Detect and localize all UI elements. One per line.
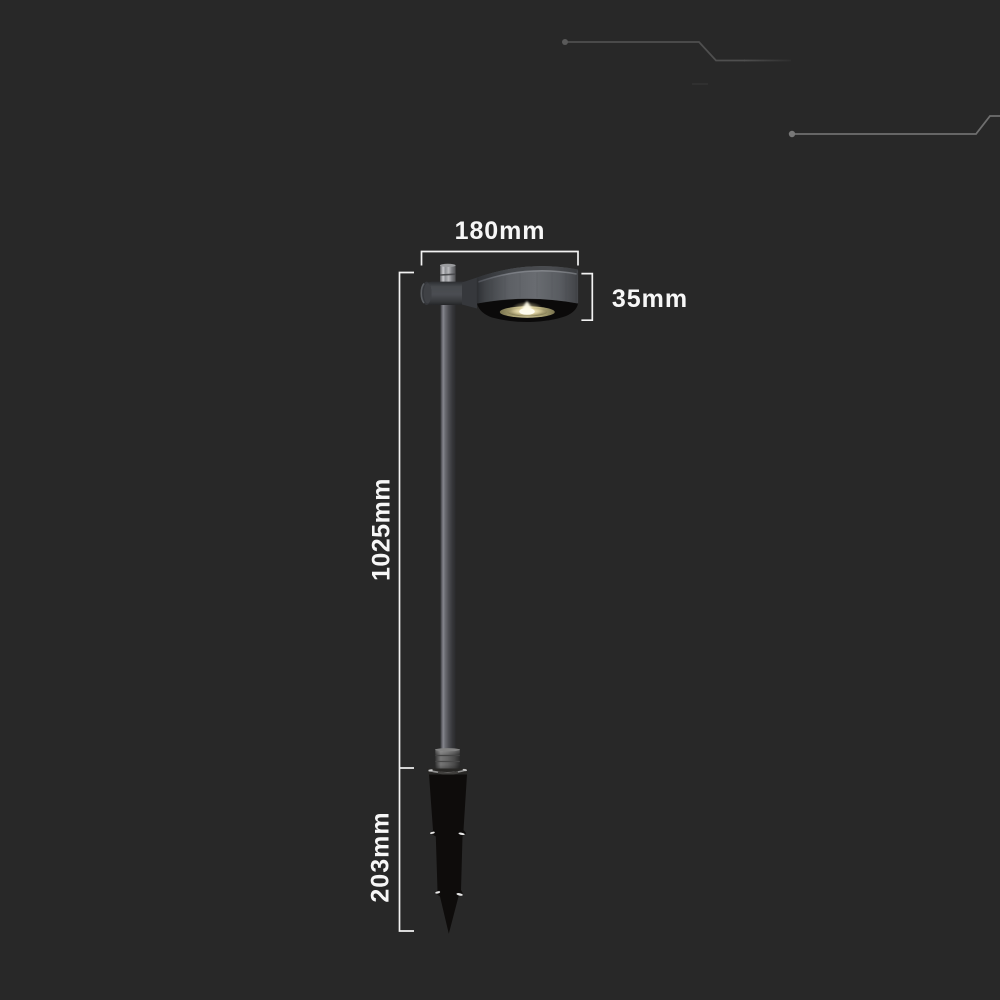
svg-text:35mm: 35mm	[612, 285, 688, 313]
svg-text:203mm: 203mm	[367, 811, 395, 902]
svg-text:1025mm: 1025mm	[368, 478, 396, 581]
svg-text:180mm: 180mm	[455, 217, 546, 245]
